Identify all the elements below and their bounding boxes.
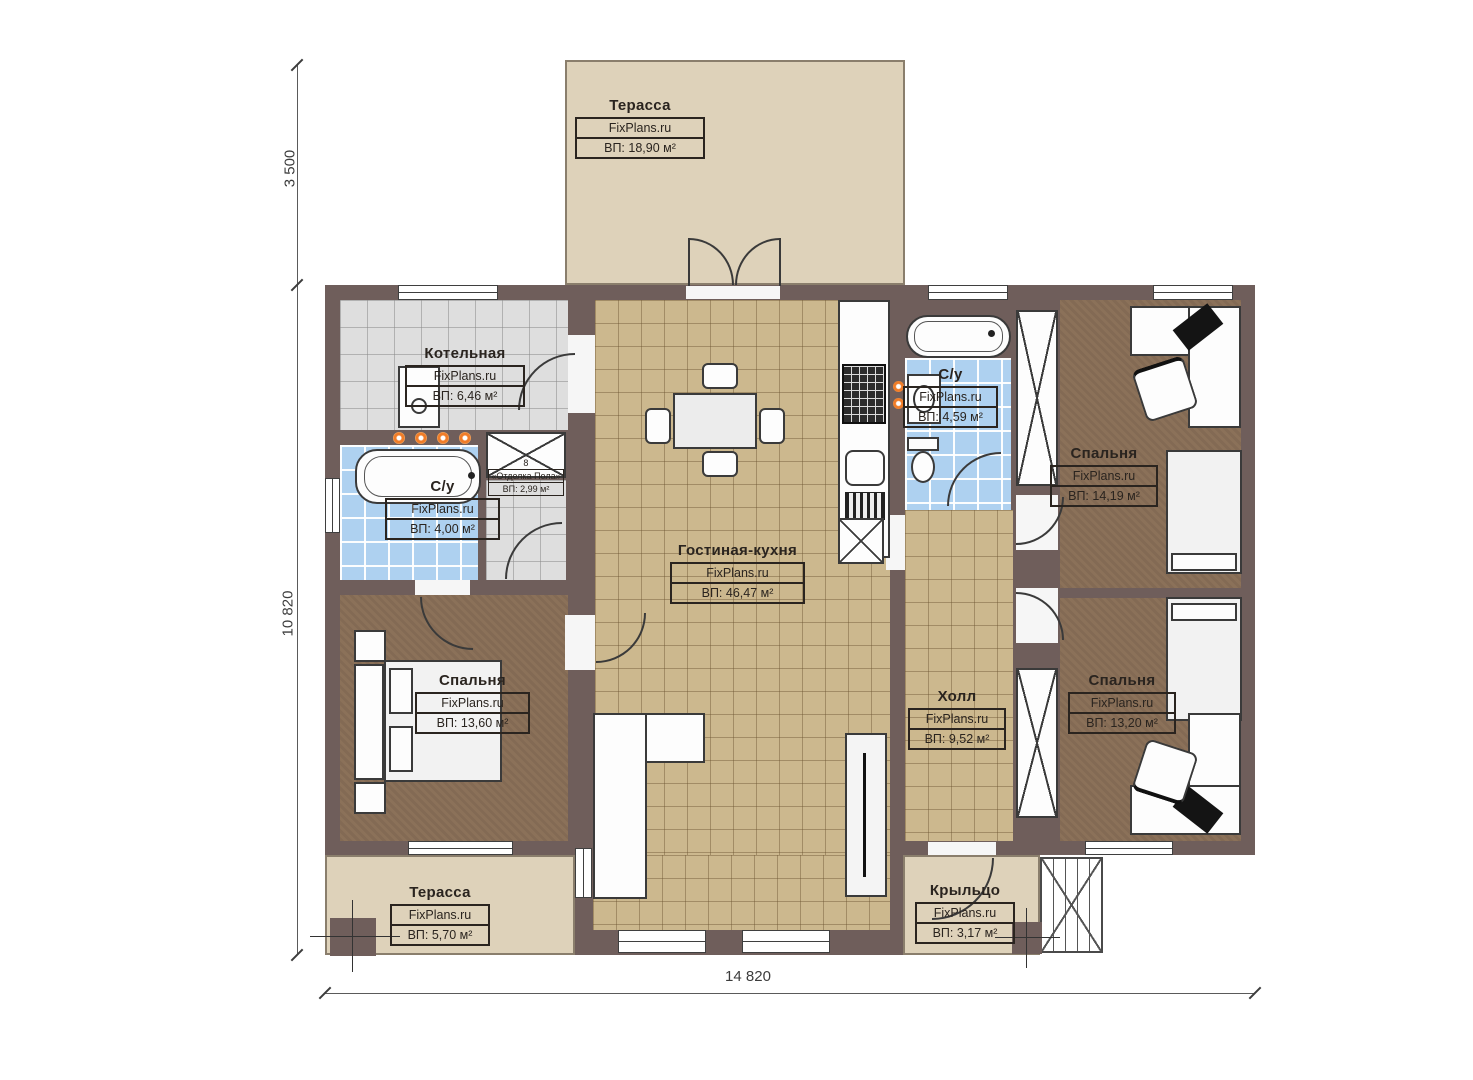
room-name: «Отделка Пола» (489, 470, 563, 483)
room-name: Гостиная-кухня (670, 542, 805, 559)
brand-text: FixPlans.ru (672, 564, 803, 584)
pillow (1171, 603, 1237, 621)
area-text: ВП: 4,00 м² (387, 520, 498, 538)
room-name: Спальня (415, 672, 530, 689)
room-label-living: Гостиная-кухня FixPlans.ru ВП: 46,47 м² (670, 542, 805, 604)
room-label-terrace-top: Терасса FixPlans.ru ВП: 18,90 м² (575, 97, 705, 159)
room-name: Терасса (575, 97, 705, 114)
floor-plan-canvas: Терасса FixPlans.ru ВП: 18,90 м² Котельн… (0, 0, 1473, 1080)
room-label-storage: 8 «Отделка Пола» ВП: 2,99 м² (488, 458, 564, 496)
area-text: ВП: 18,90 м² (577, 139, 703, 157)
area-text: ВП: 14,19 м² (1052, 487, 1156, 505)
dimension-line-horizontal (325, 993, 1255, 994)
room-label-bedroom-left: Спальня FixPlans.ru ВП: 13,60 м² (415, 672, 530, 734)
room-label-porch: Крыльцо FixPlans.ru ВП: 3,17 м² (915, 882, 1015, 944)
area-text: ВП: 13,20 м² (1070, 714, 1174, 732)
area-text: ВП: 9,52 м² (910, 730, 1004, 748)
pillow (1171, 553, 1237, 571)
window-living-south-1 (618, 930, 706, 953)
room-info-box: FixPlans.ru ВП: 4,00 м² (385, 498, 500, 540)
room-label-boiler: Котельная FixPlans.ru ВП: 6,46 м² (405, 345, 525, 407)
cross-marker (1026, 908, 1027, 968)
room-name: С/у (903, 366, 998, 383)
terrace-door-leaf-right (779, 238, 781, 286)
room-info-box: FixPlans.ru ВП: 14,19 м² (1050, 465, 1158, 507)
pillow (389, 668, 413, 714)
brand-text: FixPlans.ru (407, 367, 523, 387)
room-info-box: FixPlans.ru ВП: 3,17 м² (915, 902, 1015, 944)
window-bath-left (325, 478, 340, 533)
window-living-south-2 (742, 930, 830, 953)
kitchen-sink-icon (845, 450, 885, 486)
wall-light-dot (437, 432, 449, 444)
room-label-bedroom-bottom-right: Спальня FixPlans.ru ВП: 13,20 м² (1068, 672, 1176, 734)
dimension-label-10820: 10 820 (280, 574, 297, 654)
room-info-box: «Отделка Пола» ВП: 2,99 м² (488, 469, 564, 496)
brand-text: FixPlans.ru (392, 906, 488, 926)
chair (759, 408, 785, 444)
brand-text: FixPlans.ru (917, 904, 1013, 924)
kitchen-drainboard (845, 492, 885, 520)
window-boiler (398, 285, 498, 300)
dimension-label-14820: 14 820 (698, 968, 798, 985)
room-info-box: FixPlans.ru ВП: 13,20 м² (1068, 692, 1176, 734)
porch-stairs (1040, 857, 1103, 953)
pillow (389, 726, 413, 772)
brand-text: FixPlans.ru (577, 119, 703, 139)
room-info-box: FixPlans.ru ВП: 9,52 м² (908, 708, 1006, 750)
dining-table (673, 393, 757, 449)
room-name: Спальня (1050, 445, 1158, 462)
window-bath-right (928, 285, 1008, 300)
dimension-label-3500: 3 500 (282, 129, 299, 209)
toilet-bowl (911, 451, 935, 483)
stove-icon (842, 364, 886, 424)
chair (645, 408, 671, 444)
area-text: ВП: 46,47 м² (672, 584, 803, 602)
terrace-door-gap (686, 286, 780, 299)
window-bedroom-left (408, 841, 513, 855)
terrace-pillar (330, 918, 376, 956)
room-info-box: FixPlans.ru ВП: 18,90 м² (575, 117, 705, 159)
porch-pillar (1012, 922, 1042, 954)
room-info-box: FixPlans.ru ВП: 13,60 м² (415, 692, 530, 734)
area-text: ВП: 6,46 м² (407, 387, 523, 405)
window-bedroom-top-right (1153, 285, 1233, 300)
room-label-bath-left: С/у FixPlans.ru ВП: 4,00 м² (385, 478, 500, 540)
terrace-door-leaf-left (688, 238, 690, 286)
area-text: ВП: 13,60 м² (417, 714, 528, 732)
room-label-terrace-bottom: Терасса FixPlans.ru ВП: 5,70 м² (390, 884, 490, 946)
brand-text: FixPlans.ru (417, 694, 528, 714)
room-note: 8 (488, 458, 564, 468)
room-label-bedroom-top-right: Спальня FixPlans.ru ВП: 14,19 м² (1050, 445, 1158, 507)
bedroom-left-door-gap (415, 580, 470, 595)
room-name: Терасса (390, 884, 490, 901)
room-name: Котельная (405, 345, 525, 362)
room-label-hall: Холл FixPlans.ru ВП: 9,52 м² (908, 688, 1006, 750)
chair (702, 363, 738, 389)
wall-light-dot (415, 432, 427, 444)
brand-text: FixPlans.ru (1052, 467, 1156, 487)
wardrobe (1016, 668, 1058, 818)
room-info-box: FixPlans.ru ВП: 5,70 м² (390, 904, 490, 946)
window-bedroom-bottom-right (1085, 841, 1173, 855)
area-text: ВП: 5,70 м² (392, 926, 488, 944)
brand-text: FixPlans.ru (905, 388, 996, 408)
chair (702, 451, 738, 477)
area-text: ВП: 2,99 м² (489, 483, 563, 495)
room-name: Спальня (1068, 672, 1176, 689)
cross-marker (310, 936, 400, 937)
cross-marker (352, 900, 353, 972)
window-living-west (575, 848, 592, 898)
bed-headboard (354, 664, 384, 780)
toilet-tank (907, 437, 939, 451)
brand-text: FixPlans.ru (910, 710, 1004, 730)
room-name: Крыльцо (915, 882, 1015, 899)
wall-light-dot (459, 432, 471, 444)
tv-icon (863, 753, 866, 877)
nightstand (354, 782, 386, 814)
terrace-top-area (565, 60, 905, 285)
brand-text: FixPlans.ru (1070, 694, 1174, 714)
brand-text: FixPlans.ru (387, 500, 498, 520)
wall-light-dot (393, 432, 405, 444)
room-info-box: FixPlans.ru ВП: 4,59 м² (903, 386, 998, 428)
room-hall-floor (905, 510, 1013, 841)
sofa (593, 713, 647, 899)
room-label-bath-right: С/у FixPlans.ru ВП: 4,59 м² (903, 366, 998, 428)
room-name: С/у (385, 478, 500, 495)
kitchen-cabinet (838, 518, 884, 564)
area-text: ВП: 4,59 м² (905, 408, 996, 426)
area-text: ВП: 3,17 м² (917, 924, 1013, 942)
nightstand (354, 630, 386, 662)
room-info-box: FixPlans.ru ВП: 46,47 м² (670, 562, 805, 604)
living-left-door-gap (565, 615, 595, 670)
room-info-box: FixPlans.ru ВП: 6,46 м² (405, 365, 525, 407)
faucet-icon (988, 330, 995, 337)
tv-stand (845, 733, 887, 897)
porch-door-gap (928, 842, 996, 855)
room-name: Холл (908, 688, 1006, 705)
